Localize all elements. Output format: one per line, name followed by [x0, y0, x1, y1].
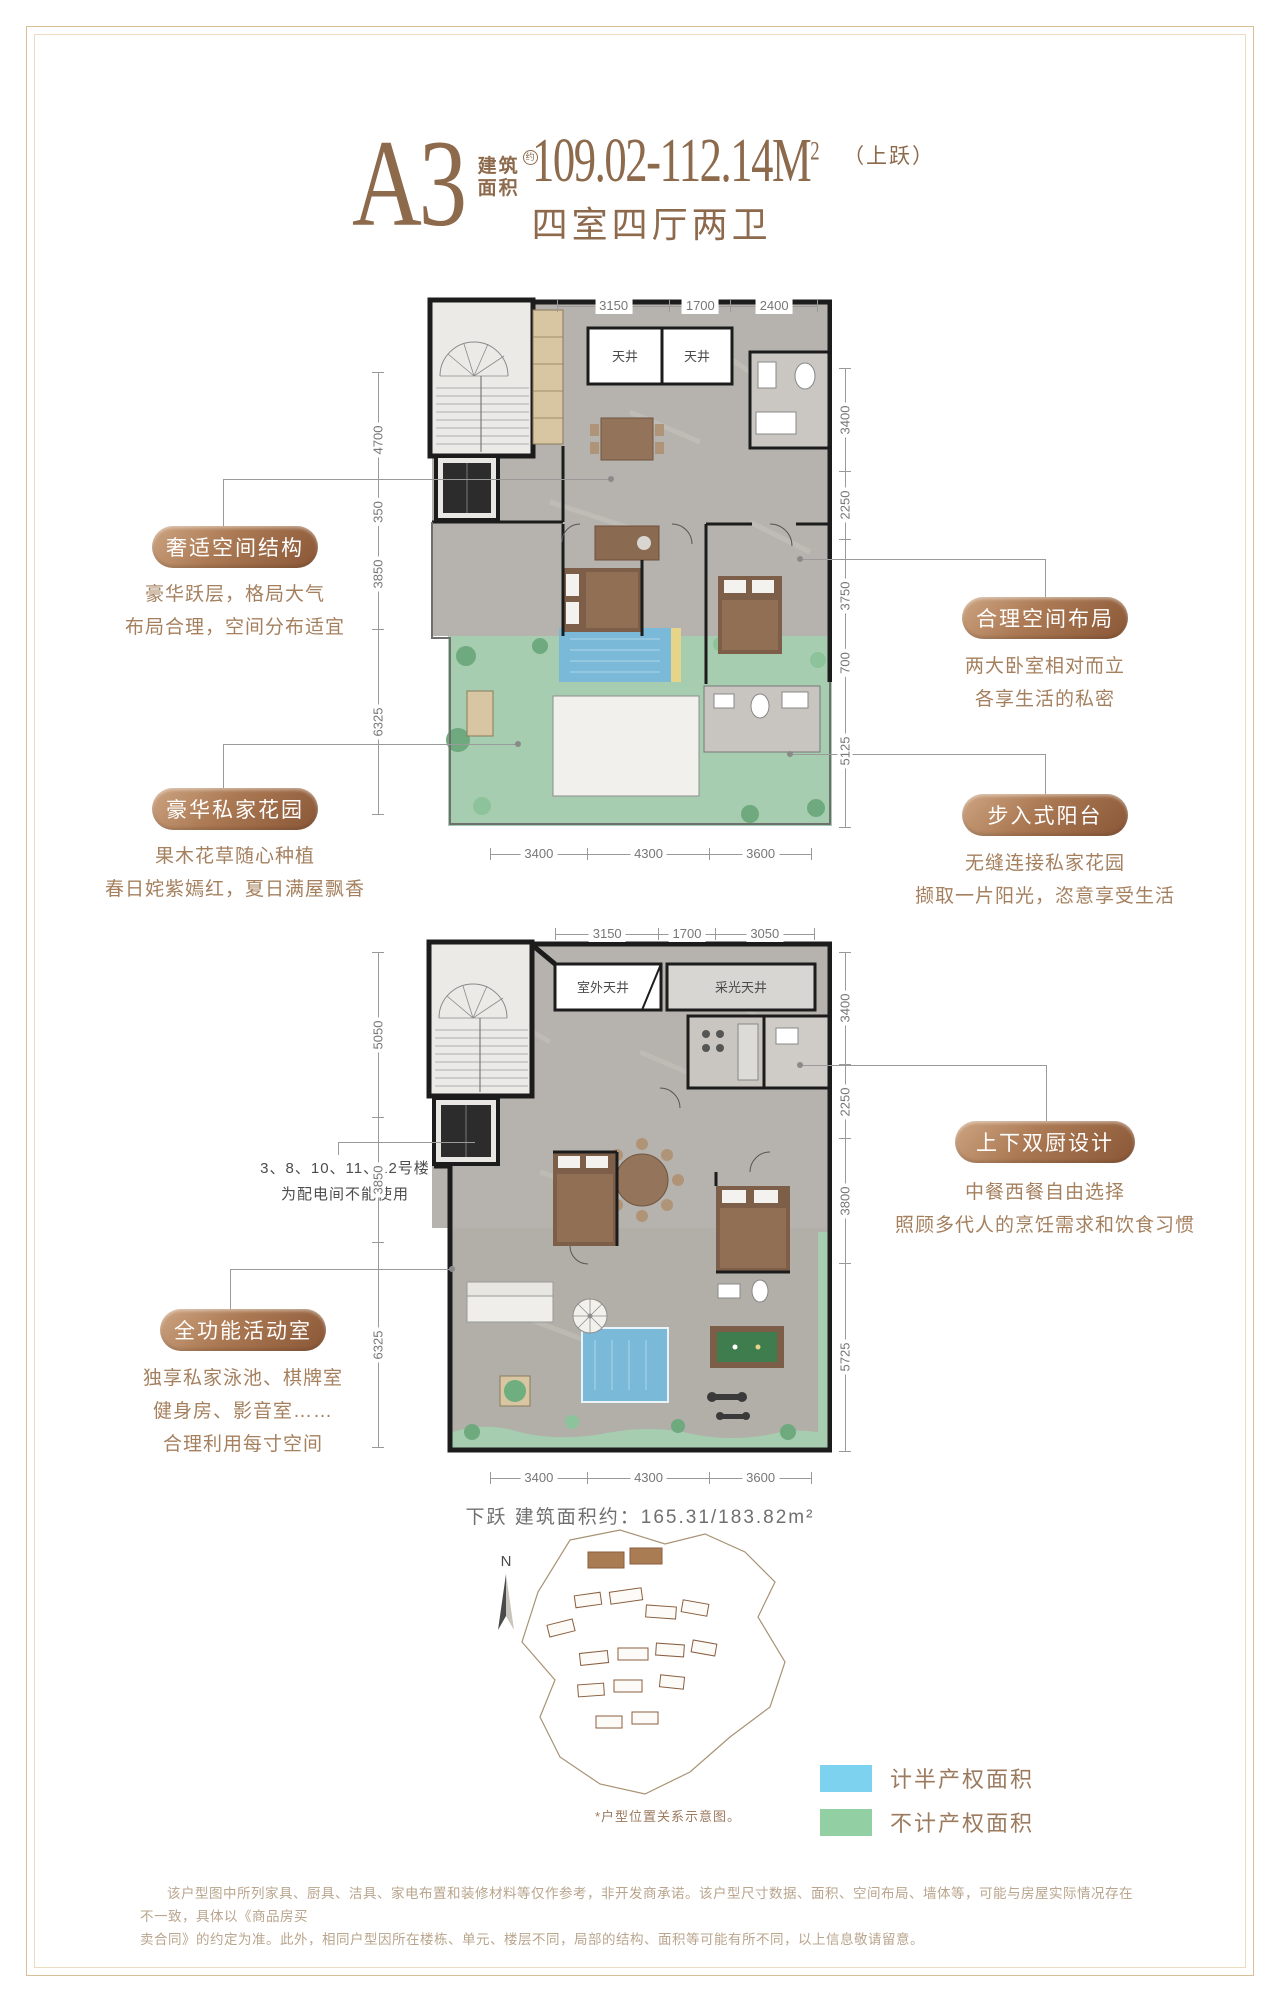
legend-no-rights: 不计产权面积 [820, 1806, 1034, 1838]
upper-patio [553, 696, 699, 796]
upper-kitchen-island [595, 526, 659, 560]
lightwell-right-label: 天井 [684, 349, 710, 364]
area-value: 109.02-112.14M2 [532, 130, 818, 192]
callout-layout: 合理空间布局 [962, 597, 1128, 639]
upper-stairwell [430, 300, 533, 456]
area-prefix: 建筑约 面积 [478, 156, 520, 200]
site-map-caption: *户型位置关系示意图。 [568, 1806, 768, 1825]
upper-lightwells: 天井 天井 [588, 328, 732, 384]
outdoor-lightwell-label: 室外天井 [577, 980, 629, 995]
callout-activity-room: 全功能活动室 [160, 1309, 326, 1351]
upper-lounge-chair [467, 691, 493, 736]
connector-structure [223, 479, 613, 480]
area-prefix-top: 建筑 [478, 156, 520, 177]
duplex-note: （上跃） [843, 140, 935, 170]
upper-dims-right: 3400 2250 3750 700 5125 [839, 368, 851, 828]
floor-plan-lower: 室外天井 采光天井 [420, 912, 832, 1468]
legend-swatch-none [820, 1809, 872, 1836]
callout-layout-desc: 两大卧室相对而立 各享生活的私密 [875, 650, 1215, 716]
plan-code: A3 [352, 122, 464, 246]
legend-swatch-half [820, 1765, 872, 1792]
lower-plant-pot [500, 1376, 530, 1406]
lower-billiard-table [710, 1326, 784, 1368]
room-count-subtitle: 四室四厅两卫 [532, 196, 935, 248]
lower-stairwell [429, 942, 532, 1096]
connector-activity [230, 1269, 452, 1270]
upper-bed-left [563, 568, 641, 632]
lower-lightwells: 室外天井 采光天井 [555, 964, 815, 1010]
daylight-lightwell-label: 采光天井 [715, 980, 767, 995]
connector-elevator-note [338, 1142, 475, 1143]
upper-bath [750, 352, 830, 448]
elevator-note: 3、8、10、11、12号楼 为配电间不能使用 [240, 1156, 450, 1208]
lower-elevator [434, 1098, 498, 1164]
lower-parasol [573, 1299, 607, 1333]
lower-bed-left [553, 1152, 617, 1246]
legend-half-rights: 计半产权面积 [820, 1762, 1034, 1794]
site-buildings [547, 1548, 717, 1728]
disclaimer: 该户型图中所列家具、厨具、洁具、家电布置和装修材料等仅作参考，非开发商承诺。该户… [140, 1882, 1145, 1951]
callout-balcony: 步入式阳台 [962, 794, 1128, 836]
callout-activity-room-desc: 独享私家泳池、棋牌室 健身房、影音室…… 合理利用每寸空间 [73, 1362, 413, 1461]
lower-pool [582, 1328, 668, 1402]
north-compass: N [498, 1553, 514, 1630]
connector-layout [800, 559, 1046, 560]
lower-dims-right: 3400 2250 3800 5725 [839, 952, 851, 1452]
lower-kitchen [688, 1016, 764, 1088]
connector-balcony [790, 754, 1046, 755]
lower-utility-room [764, 1016, 830, 1088]
upper-bed-right [718, 576, 782, 654]
callout-structure: 奢适空间结构 [152, 526, 318, 568]
lower-bed-right [716, 1186, 790, 1272]
lower-dims-top: 3150 1700 3050 [555, 928, 815, 940]
callout-dual-kitchen-desc: 中餐西餐自由选择 照顾多代人的烹饪需求和饮食习惯 [855, 1176, 1235, 1242]
upper-garden-wc [704, 686, 820, 752]
title-block: A3 建筑约 面积 109.02-112.14M2 （上跃） 四室四厅两卫 [352, 122, 935, 248]
floorplan-poster: A3 建筑约 面积 109.02-112.14M2 （上跃） 四室四厅两卫 [0, 0, 1280, 2002]
area-legend: 计半产权面积 不计产权面积 [820, 1762, 1034, 1850]
callout-dual-kitchen: 上下双厨设计 [955, 1121, 1135, 1163]
upper-dims-bottom: 3400 4300 3600 [490, 848, 812, 860]
upper-dining-set [590, 418, 664, 460]
upper-wardrobe [533, 310, 563, 444]
callout-garden: 豪华私家花园 [152, 788, 318, 830]
lightwell-left-label: 天井 [612, 349, 638, 364]
svg-text:N: N [501, 1553, 512, 1570]
connector-kitchen [800, 1065, 1046, 1066]
lower-sofa [467, 1282, 553, 1322]
lower-dims-bottom: 3400 4300 3600 [490, 1472, 812, 1484]
callout-garden-desc: 果木花草随心种植 春日姹紫嫣红，夏日满屋飘香 [40, 840, 430, 906]
upper-elevator [436, 456, 498, 520]
site-plan-map: N [460, 1522, 810, 1822]
site-boundary [522, 1530, 785, 1794]
upper-dims-top: 3150 1700 2400 [557, 300, 818, 312]
callout-structure-desc: 豪华跃层，格局大气 布局合理，空间分布适宜 [65, 578, 405, 644]
area-prefix-bottom: 面积 [478, 178, 520, 200]
connector-garden [223, 744, 520, 745]
square-sup: 2 [810, 136, 818, 165]
callout-balcony-desc: 无缝连接私家花园 撷取一片阳光，恣意享受生活 [860, 847, 1230, 913]
floor-plan-upper: 天井 天井 [420, 292, 832, 832]
upper-pool [559, 628, 681, 682]
